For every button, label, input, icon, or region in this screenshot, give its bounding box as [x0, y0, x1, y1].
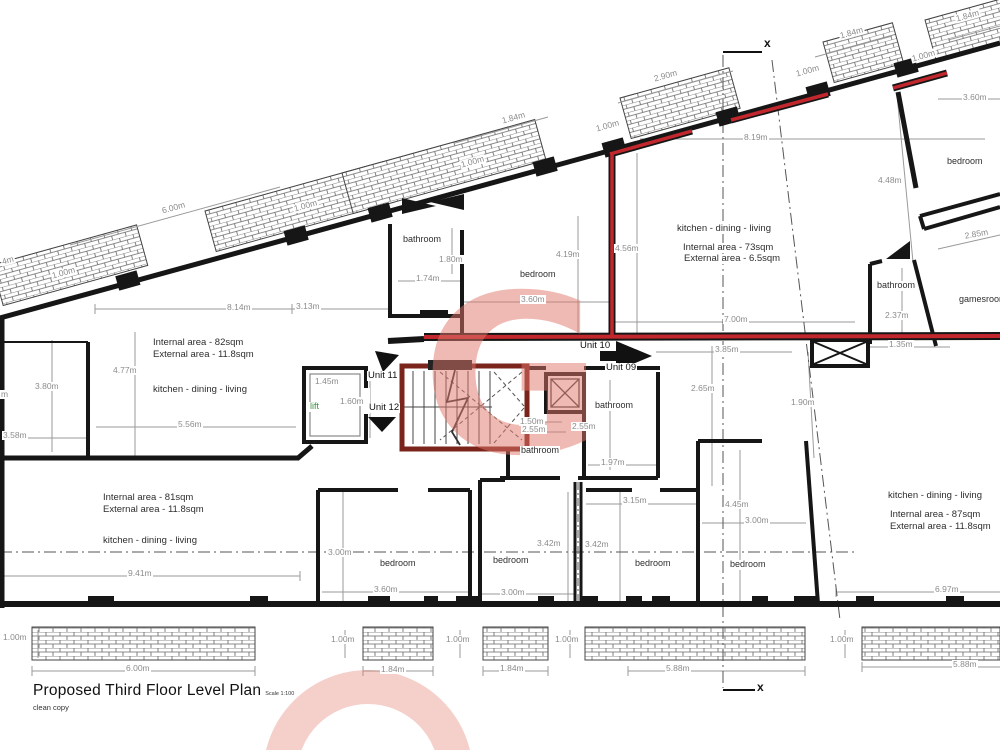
dimension-label: 9.41m [127, 569, 153, 578]
dimension-label: 3.60m [962, 93, 988, 102]
room-label: gamesroom [958, 295, 1000, 305]
room-label: bathroom [402, 235, 442, 245]
section-marker-label: x [764, 37, 771, 50]
dimension-label: 4.56m [614, 244, 640, 253]
room-label: bedroom [379, 559, 417, 569]
room-label: bathroom [520, 446, 560, 456]
dimension-label: 4.45m [724, 500, 750, 509]
dimension-label: 3.00m [500, 588, 526, 597]
area-label: Internal area - 87sqm [889, 510, 981, 520]
dimension-label: 1.97m [600, 458, 626, 467]
area-label: kitchen - dining - living [887, 491, 983, 501]
lift-label: lift [309, 402, 320, 412]
dimension-label: 1.45m [314, 377, 340, 386]
dimension-label: 7.00m [723, 315, 749, 324]
dimension-label: 2.55m [521, 425, 547, 434]
room-label: bedroom [634, 559, 672, 569]
dimension-label: 6.00m [125, 664, 151, 673]
area-label: Internal area - 73sqm [682, 243, 774, 253]
dimension-label: 5.88m [952, 660, 978, 669]
dimension-label: 3.60m [373, 585, 399, 594]
unit-label: Unit 11 [367, 371, 398, 381]
area-label: kitchen - dining - living [152, 385, 248, 395]
room-label: bedroom [519, 270, 557, 280]
parapet-walls-bottom [32, 627, 1000, 660]
area-label: External area - 11.8sqm [102, 505, 205, 515]
area-label: kitchen - dining - living [102, 536, 198, 546]
dimension-label: 1.35m [888, 340, 914, 349]
dimension-label: 1.84m [380, 665, 406, 674]
area-label: kitchen - dining - living [676, 224, 772, 234]
room-label: bedroom [729, 560, 767, 570]
dimension-label: 3.80m [34, 382, 60, 391]
room-label: bedroom [946, 157, 984, 167]
dimension-label: 1.00m [2, 633, 28, 642]
dimension-label: 1.80m [438, 255, 464, 264]
dimension-label: 4.19m [555, 250, 581, 259]
dimension-label: 1.90m [790, 398, 816, 407]
dimension-label: 2.55m [571, 422, 597, 431]
dimension-label: 8.14m [226, 303, 252, 312]
dimension-label: 5.88m [665, 664, 691, 673]
dimension-label: 3.85m [714, 345, 740, 354]
area-label: Internal area - 82sqm [152, 338, 244, 348]
area-label: Internal area - 81sqm [102, 493, 194, 503]
dimension-label: 3.00m [744, 516, 770, 525]
unit-label: Unit 09 [605, 363, 637, 373]
plan-title: Proposed Third Floor Level Plan [33, 682, 261, 699]
dimension-label: 1.84m [499, 664, 525, 673]
dimension-label: 3.60m [520, 295, 546, 304]
area-label: External area - 11.8sqm [889, 522, 992, 532]
dimension-label: 4.48m [877, 176, 903, 185]
area-label: External area - 11.8sqm [152, 350, 255, 360]
section-markers [723, 52, 762, 690]
section-marker-label: x [757, 681, 764, 694]
dimension-label: 3.00m [327, 548, 353, 557]
dimension-label: 3.42m [536, 539, 562, 548]
plan-scale: Scale 1:100 [265, 691, 294, 697]
dimension-label: 1.60m [339, 397, 365, 406]
floor-plan-page: G 4m6.00m1.00m1.00m1.84m1.00m1.00m2.90m1… [0, 0, 1000, 750]
area-label: External area - 6.5sqm [683, 254, 781, 264]
dimension-label: 5.56m [177, 420, 203, 429]
plan-note: clean copy [33, 703, 294, 712]
dimension-label: 4.77m [112, 366, 138, 375]
dimension-label: m [0, 390, 9, 399]
dimension-label: 2.37m [884, 311, 910, 320]
dimension-label: 3.13m [295, 302, 321, 311]
dimension-label: 3.15m [622, 496, 648, 505]
dimension-label: 1.00m [445, 635, 471, 644]
dimension-label: 1.74m [415, 274, 441, 283]
dimension-label: 1.00m [829, 635, 855, 644]
svg-text:G: G [422, 248, 603, 504]
room-label: bedroom [492, 556, 530, 566]
dimension-label: 1.00m [554, 635, 580, 644]
room-label: bathroom [876, 281, 916, 291]
dimension-label: 3.58m [2, 431, 28, 440]
unit-label: Unit 10 [579, 341, 611, 351]
dimension-label: 1.00m [330, 635, 356, 644]
unit-label: Unit 12 [368, 403, 400, 413]
dimension-label: 8.19m [743, 133, 769, 142]
dimension-label: 3.42m [584, 540, 610, 549]
dimension-label: 2.65m [690, 384, 716, 393]
title-block: Proposed Third Floor Level PlanScale 1:1… [33, 682, 294, 712]
watermark-g: G [280, 248, 602, 750]
dimension-label: 6.97m [934, 585, 960, 594]
room-label: bathroom [594, 401, 634, 411]
